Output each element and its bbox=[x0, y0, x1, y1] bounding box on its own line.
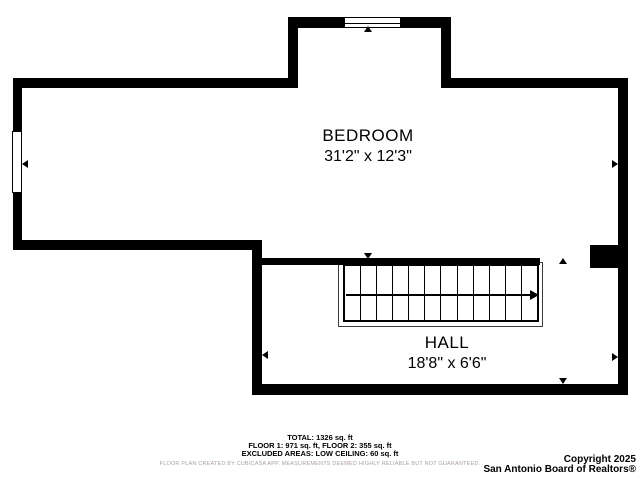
stair-arrow-icon bbox=[530, 290, 539, 300]
room-name-bedroom: BEDROOM bbox=[322, 126, 413, 146]
marker-right-bedroom-icon bbox=[612, 160, 618, 168]
hall-label: HALL 18'8" x 6'6" bbox=[408, 333, 487, 373]
summary-excluded: EXCLUDED AREAS: LOW CEILING: 60 sq. ft bbox=[242, 450, 399, 458]
marker-right-hall-icon bbox=[612, 353, 618, 361]
wall-bedroom-bottom bbox=[13, 240, 262, 250]
window-left bbox=[12, 131, 22, 193]
wall-hall-top bbox=[262, 258, 540, 265]
wall-right bbox=[618, 78, 628, 395]
marker-left-window-icon bbox=[22, 160, 28, 168]
room-dims-bedroom: 31'2" x 12'3" bbox=[322, 148, 413, 166]
chimney-block bbox=[590, 245, 628, 268]
wall-top-right bbox=[441, 78, 628, 88]
marker-down-hall-top-icon bbox=[364, 253, 372, 259]
copyright-notice: Copyright 2025 San Antonio Board of Real… bbox=[483, 455, 636, 475]
wall-bump-top-left bbox=[288, 17, 344, 28]
room-name-hall: HALL bbox=[408, 333, 487, 353]
wall-hall-bottom bbox=[252, 384, 628, 395]
wall-hall-left bbox=[252, 250, 262, 395]
marker-left-hall-icon bbox=[262, 351, 268, 359]
wall-top-left bbox=[13, 78, 298, 88]
area-summary: TOTAL: 1326 sq. ft FLOOR 1: 971 sq. ft, … bbox=[242, 434, 399, 457]
disclaimer-text: FLOOR PLAN CREATED BY CUBICASA APP. MEAS… bbox=[160, 461, 481, 467]
marker-down-hall-bottom-icon bbox=[559, 378, 567, 384]
window-top bbox=[344, 17, 401, 28]
bedroom-label: BEDROOM 31'2" x 12'3" bbox=[322, 126, 413, 166]
floorplan-page: BEDROOM 31'2" x 12'3" HALL 18'8" x 6'6" … bbox=[0, 0, 640, 480]
stair-direction-line bbox=[346, 294, 530, 296]
copyright-line2: San Antonio Board of Realtors® bbox=[483, 465, 636, 475]
room-dims-hall: 18'8" x 6'6" bbox=[408, 355, 487, 373]
marker-up-top-window-icon bbox=[364, 26, 372, 32]
wall-left-upper bbox=[13, 78, 22, 131]
marker-up-hall-opening-icon bbox=[559, 258, 567, 264]
stair-treads bbox=[343, 264, 539, 322]
staircase bbox=[338, 262, 543, 327]
